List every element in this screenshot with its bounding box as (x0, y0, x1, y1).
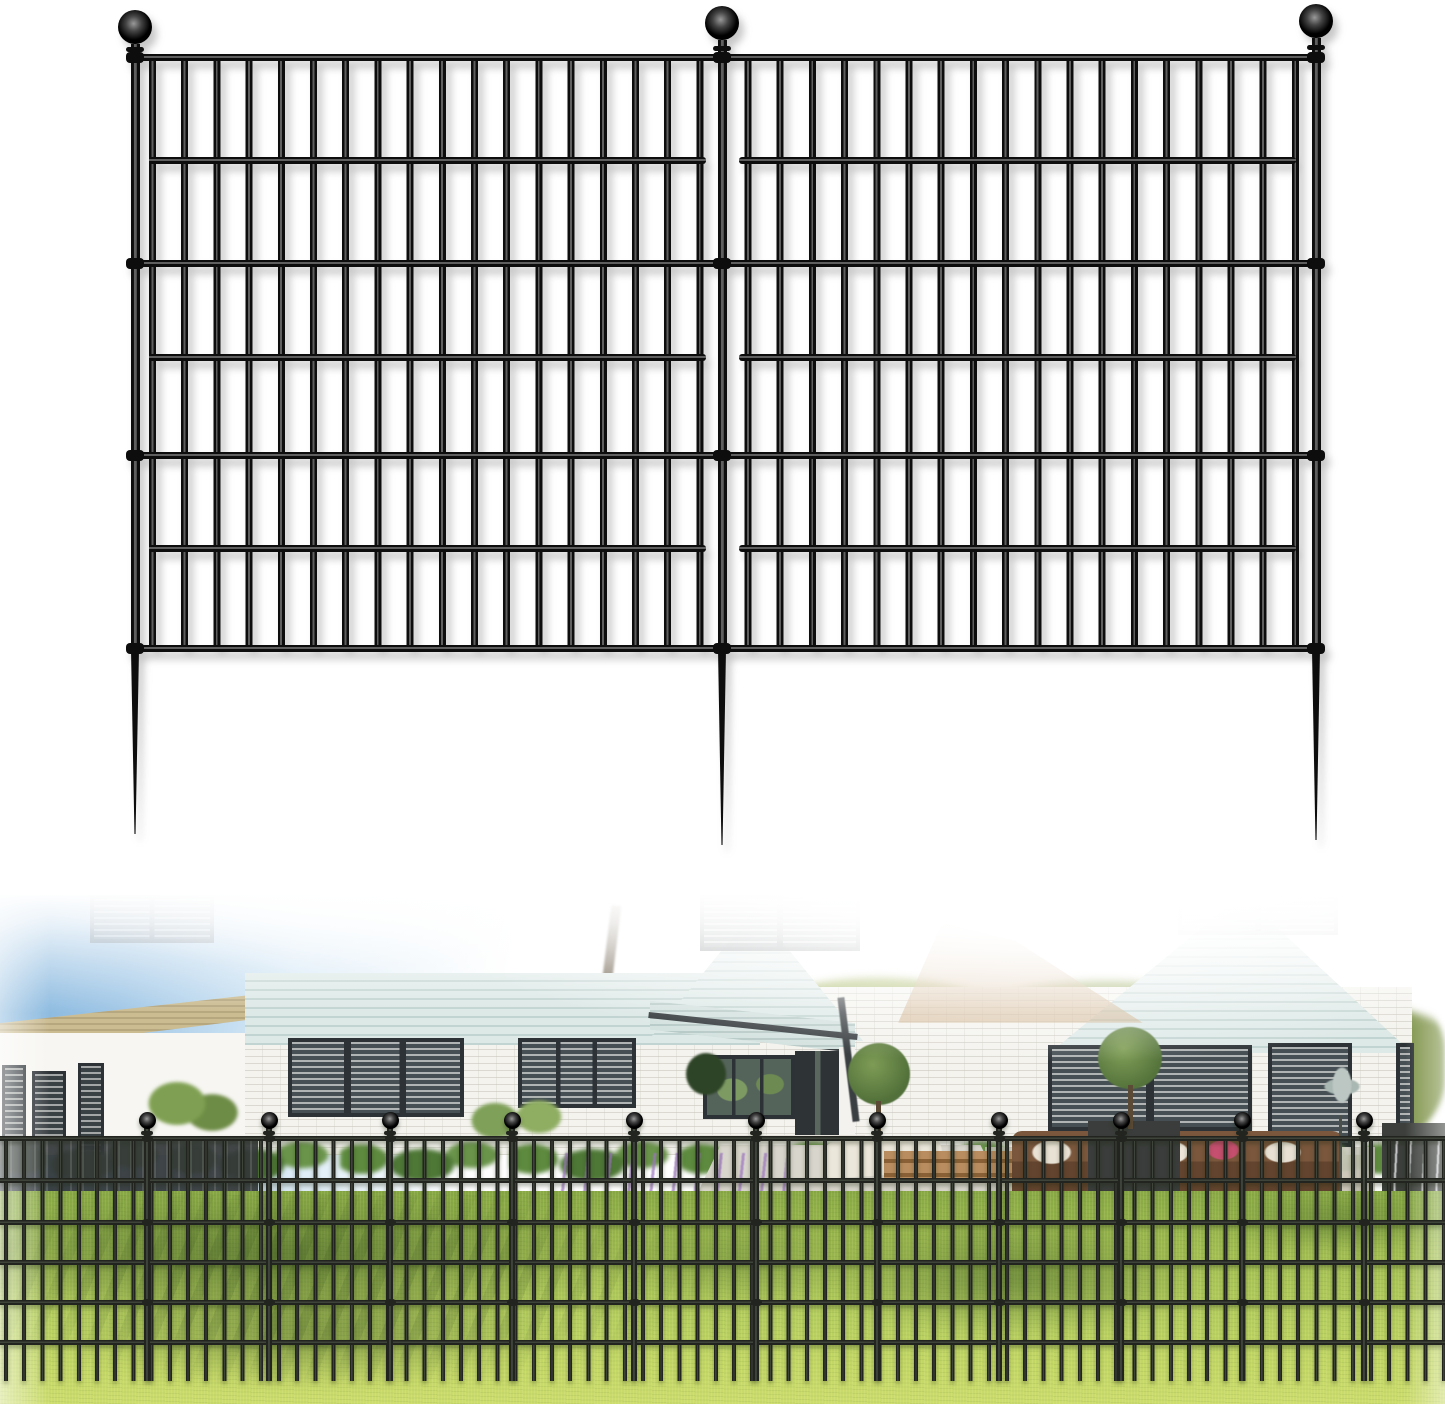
fence-rail (739, 354, 1296, 361)
post-ball-finial (991, 1112, 1008, 1129)
fence-post (387, 1127, 393, 1381)
fence-post (718, 40, 727, 654)
fence-rail (0, 1136, 1445, 1141)
panel-clamp (872, 1219, 883, 1226)
panel-clamp (629, 1219, 640, 1226)
panel-clamp (1116, 1299, 1127, 1306)
fence-post (996, 1127, 1002, 1381)
panel-clamp (126, 643, 144, 654)
fence-rail (135, 645, 722, 652)
panel-clamp (126, 450, 144, 461)
post-collar (1307, 45, 1325, 50)
installed-fence (0, 895, 1445, 1404)
panel-clamp (1237, 1299, 1248, 1306)
panel-clamp (994, 1219, 1005, 1226)
fence-product-render (0, 0, 1445, 895)
fence-rail (0, 1340, 1445, 1345)
post-ball-finial (261, 1112, 278, 1129)
fence-rail (149, 354, 706, 361)
fence-post (509, 1127, 515, 1381)
post-ball-finial (705, 6, 739, 40)
panel-clamp (1116, 1219, 1127, 1226)
panel-clamp (1237, 1135, 1248, 1142)
panel-clamp (713, 52, 731, 63)
panel-clamp (1359, 1299, 1370, 1306)
post-ground-spike (718, 652, 727, 845)
panel-clamp (872, 1135, 883, 1142)
fence-rail (722, 260, 1316, 267)
panel-clamp (713, 643, 731, 654)
fence-post (1118, 1127, 1124, 1381)
fence-post (874, 1127, 880, 1381)
post-ball-finial (626, 1112, 643, 1129)
fence-rail (722, 452, 1316, 459)
panel-clamp (385, 1219, 396, 1226)
post-ball-finial (139, 1112, 156, 1129)
panel-clamp (994, 1135, 1005, 1142)
panel-clamp (1237, 1219, 1248, 1226)
panel-clamp (1307, 450, 1325, 461)
fence-rail (0, 1178, 1445, 1183)
panel-clamp (994, 1299, 1005, 1306)
panel-clamp (1307, 643, 1325, 654)
panel-clamp (126, 52, 144, 63)
panel-clamp (713, 450, 731, 461)
panel-clamp (872, 1299, 883, 1306)
panel-clamp (751, 1135, 762, 1142)
panel-clamp (507, 1135, 518, 1142)
panel-clamp (751, 1219, 762, 1226)
panel-clamp (264, 1135, 275, 1142)
panel-clamp (629, 1135, 640, 1142)
post-ball-finial (1113, 1112, 1130, 1129)
fence-rail (135, 260, 722, 267)
post-ball-finial (1234, 1112, 1251, 1129)
fence-post (631, 1127, 637, 1381)
fence-rail (149, 545, 706, 552)
post-ball-finial (1356, 1112, 1373, 1129)
fence-rail (135, 452, 722, 459)
panel-clamp (264, 1299, 275, 1306)
fence-post (1239, 1127, 1245, 1381)
post-ball-finial (118, 10, 152, 44)
fence-post (1361, 1127, 1367, 1381)
post-ball-finial (748, 1112, 765, 1129)
fence-rail (739, 157, 1296, 164)
panel-clamp (713, 258, 731, 269)
fence-post (266, 1127, 272, 1381)
fence-rail (722, 54, 1316, 61)
panel-clamp (142, 1135, 153, 1142)
panel-clamp (629, 1299, 640, 1306)
post-collar (713, 46, 731, 51)
post-ball-finial (1299, 4, 1333, 38)
fence-rail (0, 1220, 1445, 1225)
panel-clamp (142, 1299, 153, 1306)
post-ball-finial (382, 1112, 399, 1129)
panel-clamp (1307, 52, 1325, 63)
post-ball-finial (869, 1112, 886, 1129)
post-ground-spike (1312, 652, 1321, 840)
product-image-canvas (0, 0, 1445, 1404)
panel-clamp (1359, 1135, 1370, 1142)
panel-clamp (264, 1219, 275, 1226)
panel-clamp (142, 1219, 153, 1226)
fence-rail (149, 157, 706, 164)
fence-post (144, 1127, 150, 1381)
fence-post (753, 1127, 759, 1381)
post-ground-spike (131, 652, 140, 834)
panel-clamp (751, 1299, 762, 1306)
fence-post (1312, 38, 1321, 654)
fence-rail (0, 1300, 1445, 1305)
panel-clamp (385, 1299, 396, 1306)
panel-clamp (1307, 258, 1325, 269)
panel-clamp (507, 1219, 518, 1226)
panel-clamp (126, 258, 144, 269)
panel-clamp (507, 1299, 518, 1306)
panel-clamp (385, 1135, 396, 1142)
fence-rail (135, 54, 722, 61)
fence-post (131, 44, 140, 654)
fence-rail (0, 1260, 1445, 1265)
post-ball-finial (504, 1112, 521, 1129)
fence-rail (739, 545, 1296, 552)
fence-rail (722, 645, 1316, 652)
panel-clamp (1359, 1219, 1370, 1226)
lifestyle-photo (0, 895, 1445, 1404)
panel-clamp (1116, 1135, 1127, 1142)
